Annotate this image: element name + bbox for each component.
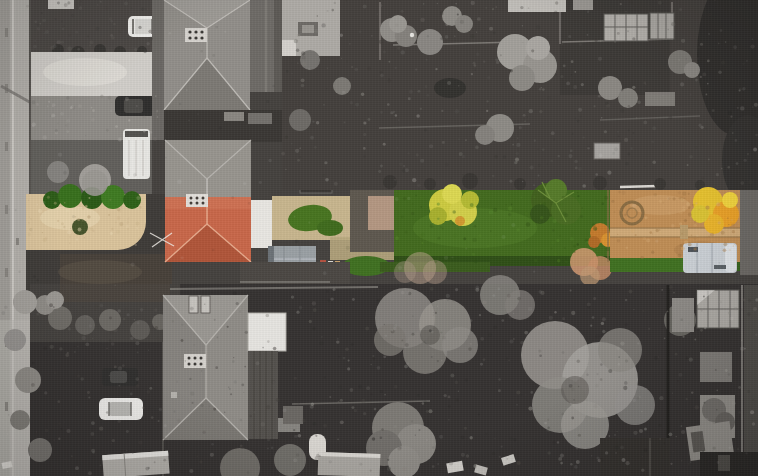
parked-van-white xyxy=(123,129,150,179)
chimney xyxy=(185,28,207,42)
rear-passage xyxy=(240,262,350,284)
shed-top-edge xyxy=(573,0,593,10)
white-extension-roof xyxy=(251,200,272,248)
path-feature xyxy=(680,225,688,239)
roof-grey-half xyxy=(165,140,251,197)
right-fence-grey xyxy=(740,190,758,275)
patio-slab xyxy=(248,113,272,124)
driveway-worn xyxy=(58,260,142,284)
pavement-patch xyxy=(48,0,74,9)
chimney xyxy=(184,354,206,368)
parked-car-dark-bottom xyxy=(102,368,138,386)
aerial-photo xyxy=(0,0,758,476)
mud-fade xyxy=(60,284,170,302)
gravel-highlight xyxy=(40,206,100,230)
annex-shadow xyxy=(274,0,282,92)
subject-chimney xyxy=(186,194,208,207)
bin xyxy=(718,455,730,471)
round-bush xyxy=(72,219,88,235)
lower-area xyxy=(4,275,758,476)
small-shed xyxy=(283,406,303,424)
patio-slab xyxy=(224,112,244,121)
paved-dark xyxy=(600,438,670,476)
greenhouse-top-2 xyxy=(650,13,674,39)
white-fence-panel xyxy=(620,186,658,187)
parked-car-white-bottom xyxy=(99,398,143,420)
white-steps xyxy=(282,40,296,56)
storage-box xyxy=(700,352,732,382)
shed-right xyxy=(672,298,694,332)
overhanging-grey-tree xyxy=(82,170,108,196)
caravan xyxy=(683,243,737,273)
roof-vent xyxy=(171,392,177,398)
white-extension-roof xyxy=(248,313,286,351)
white-post xyxy=(410,33,414,37)
right-edge-strip xyxy=(744,285,758,476)
skylight xyxy=(201,296,210,313)
pond-dark xyxy=(434,78,466,98)
patio-pink xyxy=(368,196,396,230)
courtyard xyxy=(282,0,340,56)
side-path xyxy=(152,0,164,140)
parked-car-dark xyxy=(115,96,156,116)
mid-shed xyxy=(645,92,675,106)
shed-bottom-centre xyxy=(318,452,381,476)
concrete-worn xyxy=(43,58,127,86)
skylight xyxy=(189,296,198,313)
greenhouse-bottom xyxy=(697,290,739,328)
top-right-gardens xyxy=(282,0,758,205)
greenhouse-top-1 xyxy=(604,14,648,41)
